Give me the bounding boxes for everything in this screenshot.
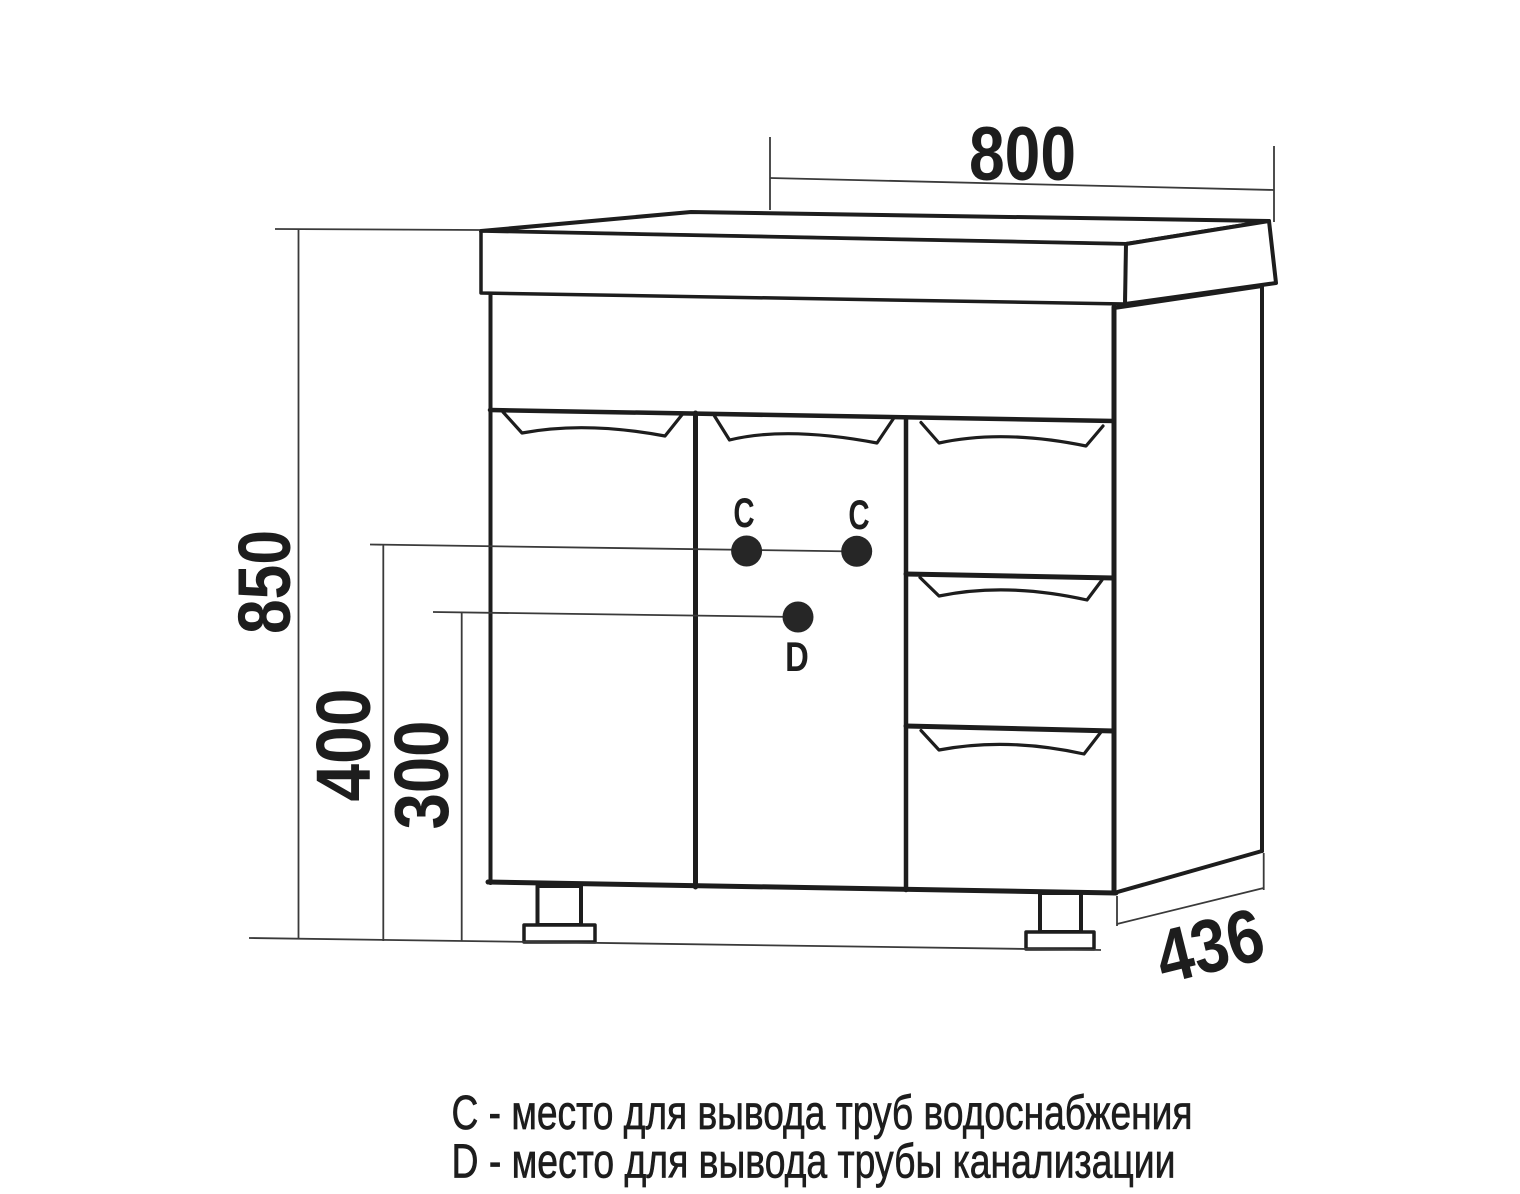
svg-text:C - место для вывода труб водо: C - место для вывода труб водоснабжения	[452, 1087, 1193, 1140]
svg-text:C: C	[733, 489, 754, 537]
svg-text:300: 300	[378, 721, 464, 830]
svg-text:400: 400	[300, 689, 386, 802]
svg-text:D: D	[785, 633, 809, 680]
svg-text:D - место для вывода трубы кан: D - место для вывода трубы канализации	[452, 1136, 1176, 1189]
svg-text:C: C	[848, 491, 869, 539]
svg-text:800: 800	[969, 111, 1076, 196]
svg-text:850: 850	[223, 530, 306, 634]
